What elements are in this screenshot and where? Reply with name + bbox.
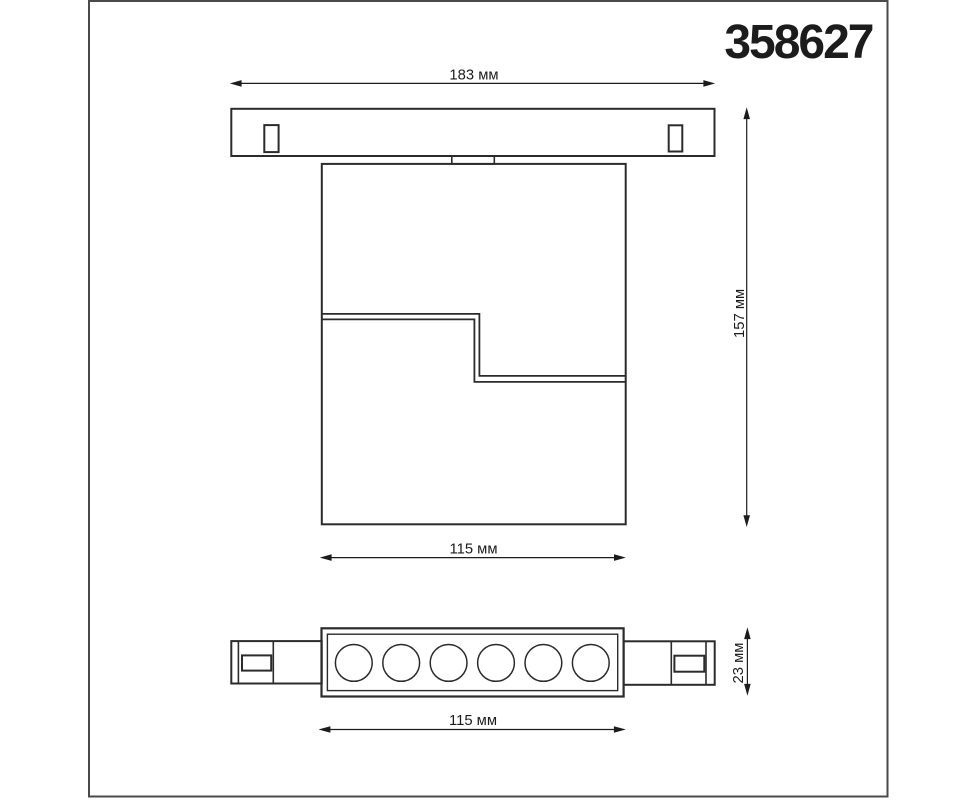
svg-text:183 мм: 183 мм xyxy=(449,68,498,84)
svg-text:115 мм: 115 мм xyxy=(449,542,497,558)
svg-text:358627: 358627 xyxy=(724,16,872,69)
svg-text:115 мм: 115 мм xyxy=(449,713,497,729)
svg-text:157 мм: 157 мм xyxy=(732,289,748,338)
svg-text:23 мм: 23 мм xyxy=(731,643,747,684)
